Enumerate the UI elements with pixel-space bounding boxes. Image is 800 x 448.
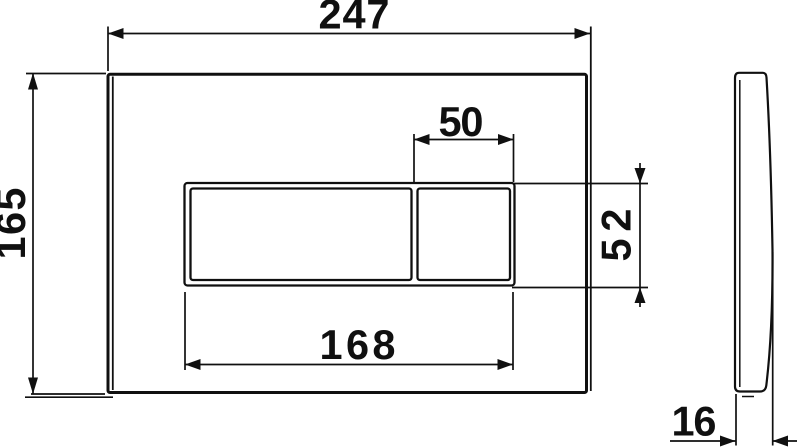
svg-text:16: 16 (672, 398, 717, 445)
svg-text:165: 165 (0, 188, 34, 260)
svg-text:50: 50 (439, 98, 484, 145)
svg-text:247: 247 (319, 0, 390, 38)
svg-text:168: 168 (320, 321, 396, 368)
